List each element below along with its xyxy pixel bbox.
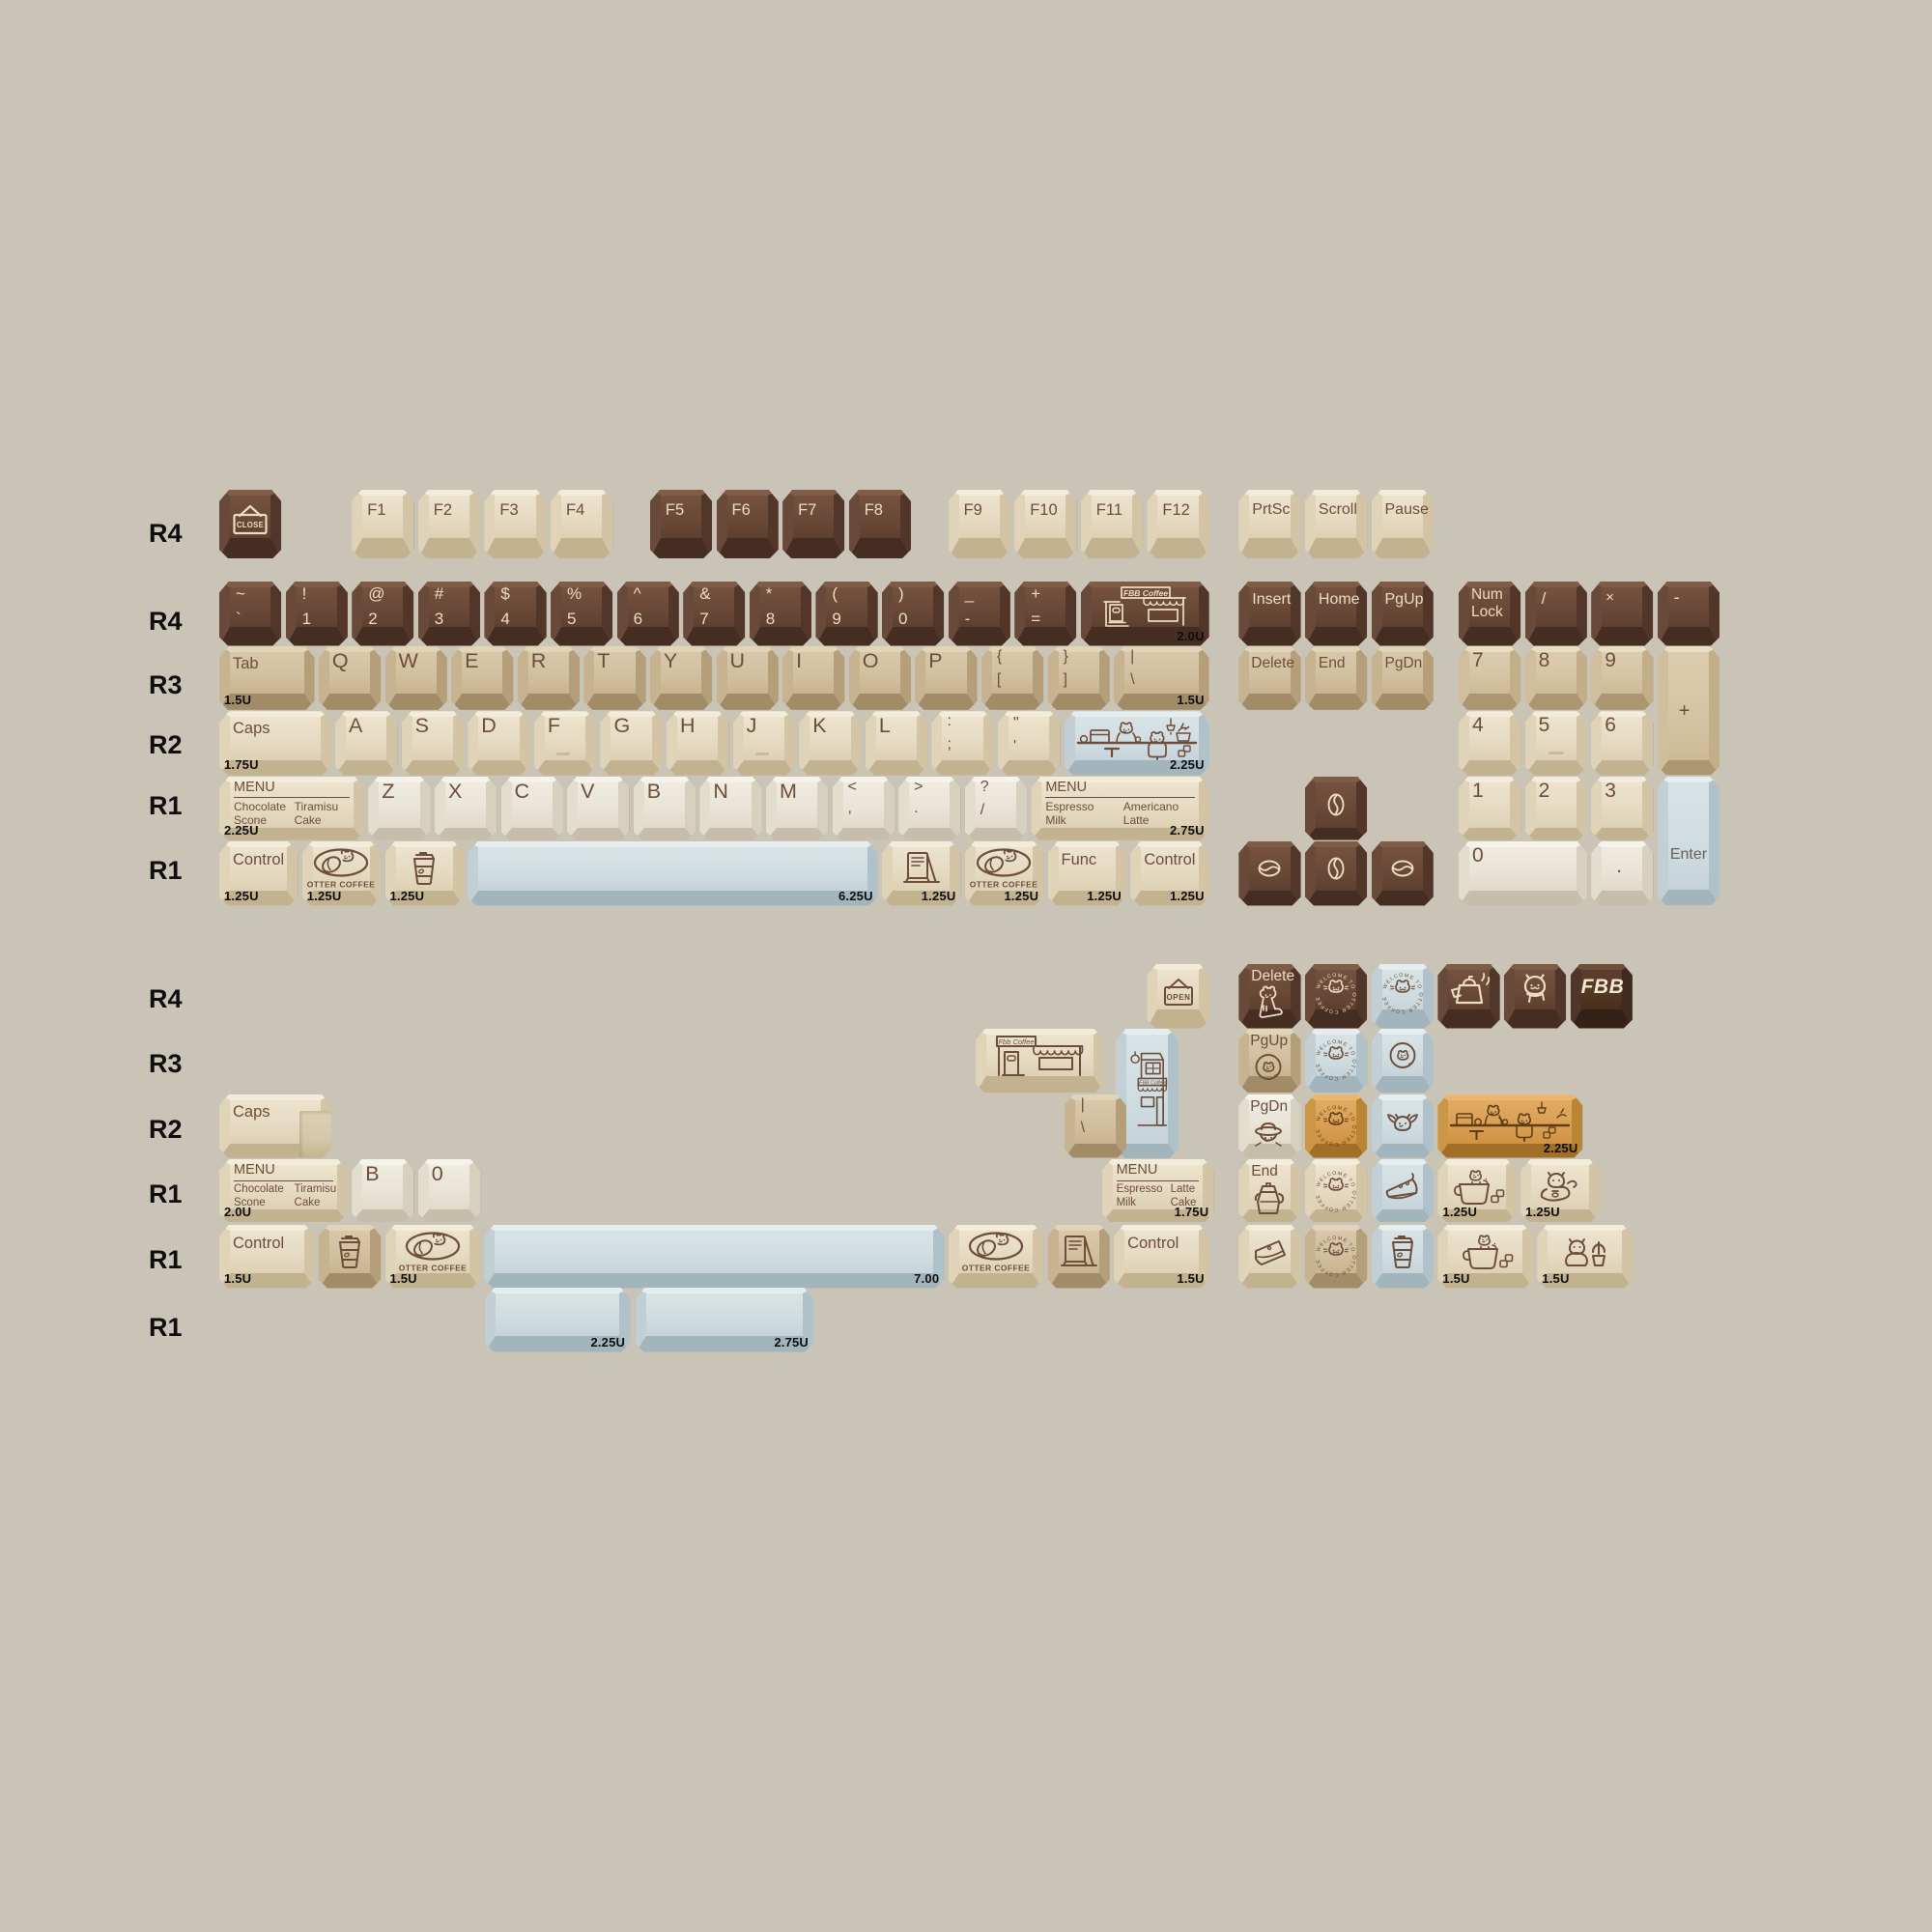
svg-text:FBB Coffee: FBB Coffee	[1139, 1080, 1165, 1086]
svg-text:WELCOME TO OTTER COFFEE: WELCOME TO OTTER COFFEE	[1315, 973, 1356, 1014]
svg-text:OPEN: OPEN	[1166, 993, 1190, 1002]
svg-text:WELCOME TO OTTER COFFEE: WELCOME TO OTTER COFFEE	[1315, 1105, 1356, 1147]
svg-text:OTTER COFFEE: OTTER COFFEE	[962, 1263, 1030, 1272]
svg-text:CLOSE: CLOSE	[237, 521, 264, 529]
svg-text:WELCOME TO OTTER COFFEE: WELCOME TO OTTER COFFEE	[1315, 1038, 1356, 1080]
svg-text:WELCOME TO OTTER COFFEE: WELCOME TO OTTER COFFEE	[1315, 1235, 1356, 1276]
svg-text:Fbb Coffee: Fbb Coffee	[999, 1037, 1035, 1046]
svg-text:WELCOME TO OTTER COFFEE: WELCOME TO OTTER COFFEE	[1315, 1171, 1356, 1212]
svg-text:WELCOME TO OTTER COFFEE: WELCOME TO OTTER COFFEE	[1381, 973, 1423, 1014]
svg-text:FBB Coffee: FBB Coffee	[1123, 588, 1168, 598]
